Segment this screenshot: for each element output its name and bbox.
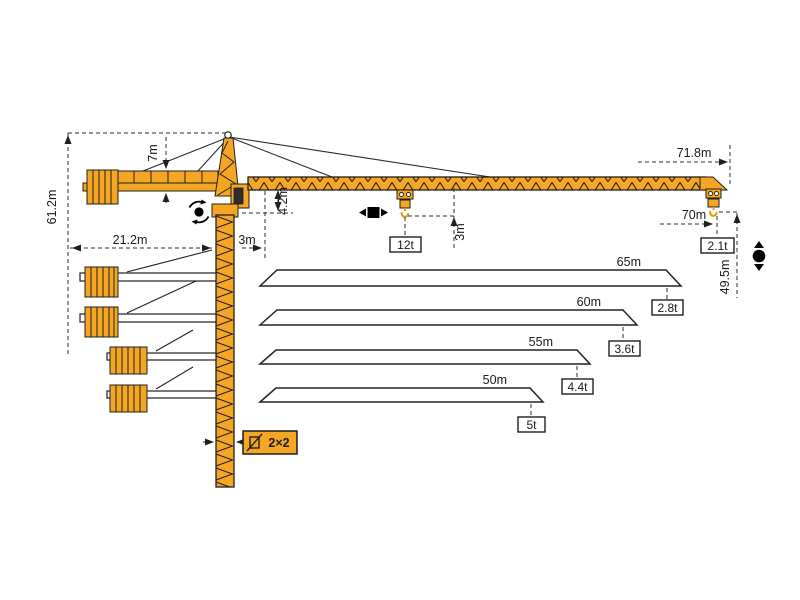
tip-capacity-value: 2.1t <box>707 239 728 253</box>
jib-option-capacity: 2.8t <box>657 301 678 315</box>
jib-tip <box>700 177 727 190</box>
main-jib <box>248 177 727 190</box>
max-capacity-badge: 12t <box>390 237 421 252</box>
jib-option-row: 50m 5t <box>260 373 545 432</box>
mast-section-value: 2×2 <box>268 436 289 450</box>
trolley-hook-mid <box>397 190 413 217</box>
dim-counter-jib-radius: 21.2m <box>113 233 148 247</box>
crane-diagram: 61.2m 7m 21.2m 3m 4.2m 3m 71.8m 70m 49.5… <box>0 0 800 600</box>
tip-capacity-badge: 2.1t <box>701 238 734 253</box>
counterweight-row <box>80 250 216 297</box>
jib-option-row: 55m 4.4t <box>260 335 593 394</box>
cab-window <box>234 188 243 204</box>
tail-ballast-block <box>87 170 118 204</box>
jib-option-row: 65m 2.8t <box>260 255 683 315</box>
dim-total-height: 61.2m <box>45 190 59 225</box>
hoist-icon <box>753 241 766 271</box>
jib-option-length: 50m <box>483 373 507 387</box>
jib-option-capacity: 5t <box>526 418 537 432</box>
max-capacity-value: 12t <box>397 238 414 252</box>
crane-diagram-stage: 61.2m 7m 21.2m 3m 4.2m 3m 71.8m 70m 49.5… <box>0 0 800 600</box>
counterweight-rows <box>80 250 216 412</box>
jib-length-options: 65m 2.8t 60m 3.6t 55m 4.4t 50m 5t <box>260 255 683 432</box>
dim-min-radius: 3m <box>238 233 255 247</box>
dim-hook-clearance: 3m <box>453 223 467 240</box>
dim-tip-hook-radius: 70m <box>682 208 706 222</box>
tower-mast <box>216 215 234 487</box>
jib-option-row: 60m 3.6t <box>260 295 640 356</box>
counterweight-row <box>107 330 216 374</box>
hook-icon <box>402 208 408 217</box>
hook-icon <box>710 207 716 216</box>
jib-option-length: 55m <box>529 335 553 349</box>
jib-option-capacity: 4.4t <box>567 380 588 394</box>
slewing-icon <box>190 200 209 225</box>
dim-tower-head-height: 7m <box>146 144 160 161</box>
dim-max-radius: 71.8m <box>677 146 712 160</box>
jib-option-length: 60m <box>577 295 601 309</box>
jib-option-capacity: 3.6t <box>614 342 635 356</box>
dim-jib-root-height: 4.2m <box>276 187 290 215</box>
counter-jib <box>83 170 222 204</box>
trolley-travel-icon <box>359 207 388 218</box>
dim-hook-height: 49.5m <box>718 260 732 295</box>
jib-option-length: 65m <box>617 255 641 269</box>
trolley-hook-tip <box>706 189 721 216</box>
